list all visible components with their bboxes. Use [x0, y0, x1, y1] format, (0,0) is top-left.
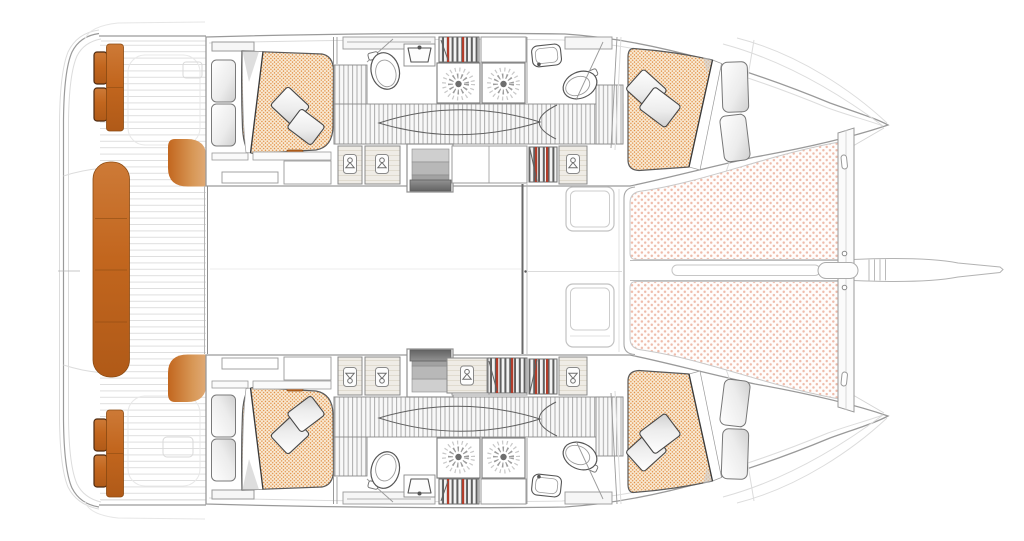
forward-cabin — [625, 49, 750, 171]
anchor-roller — [818, 263, 858, 279]
under-berth-shelf — [253, 152, 331, 160]
hanger-icon — [461, 366, 474, 385]
aft-cabin — [212, 37, 334, 184]
cabinet — [222, 172, 278, 183]
wardrobe — [365, 146, 400, 184]
bench-cushions — [719, 62, 750, 163]
low-shelf — [212, 153, 248, 160]
aft-bench-port — [107, 44, 124, 131]
starboard-hull-extras — [447, 358, 527, 393]
deck-hatch — [566, 187, 614, 231]
center-strut — [672, 265, 820, 276]
hanger-icon — [567, 155, 580, 174]
washbasin — [404, 44, 435, 66]
aft-bench-starboard — [107, 410, 124, 497]
shelf — [212, 42, 254, 51]
starboard-hull — [206, 281, 888, 508]
catamaran-floor-plan — [0, 0, 1024, 541]
bookshelf — [529, 147, 557, 182]
sofa — [212, 60, 236, 146]
washbasin — [531, 43, 562, 67]
cabinet — [565, 37, 612, 49]
bookshelf — [439, 37, 479, 62]
double-berth — [242, 51, 334, 154]
deck-hatch — [566, 284, 614, 347]
hanger-icon — [376, 155, 389, 174]
port-hull — [206, 33, 888, 260]
cabinets — [452, 146, 527, 183]
wardrobe — [447, 358, 487, 393]
bow-rig — [672, 128, 1003, 412]
companionway-stairs — [407, 144, 453, 192]
forward-stairs — [596, 85, 623, 144]
bowsprit — [853, 259, 1003, 282]
foredeck — [524, 187, 635, 355]
toilet — [367, 47, 404, 92]
transom-bench — [93, 162, 130, 377]
wardrobe — [338, 146, 362, 184]
cockpit-corner-seat-port — [168, 139, 207, 187]
shower-cubicle — [437, 63, 480, 103]
shower-cubicle — [482, 63, 525, 103]
bookshelf — [488, 358, 527, 393]
aft-cockpit — [58, 22, 207, 519]
hanger-icon — [344, 155, 357, 174]
corner-desk — [284, 161, 331, 184]
cabinet — [481, 37, 526, 62]
wardrobe — [559, 146, 587, 184]
salon — [205, 184, 528, 354]
cockpit-corner-seat-starboard — [168, 355, 207, 403]
